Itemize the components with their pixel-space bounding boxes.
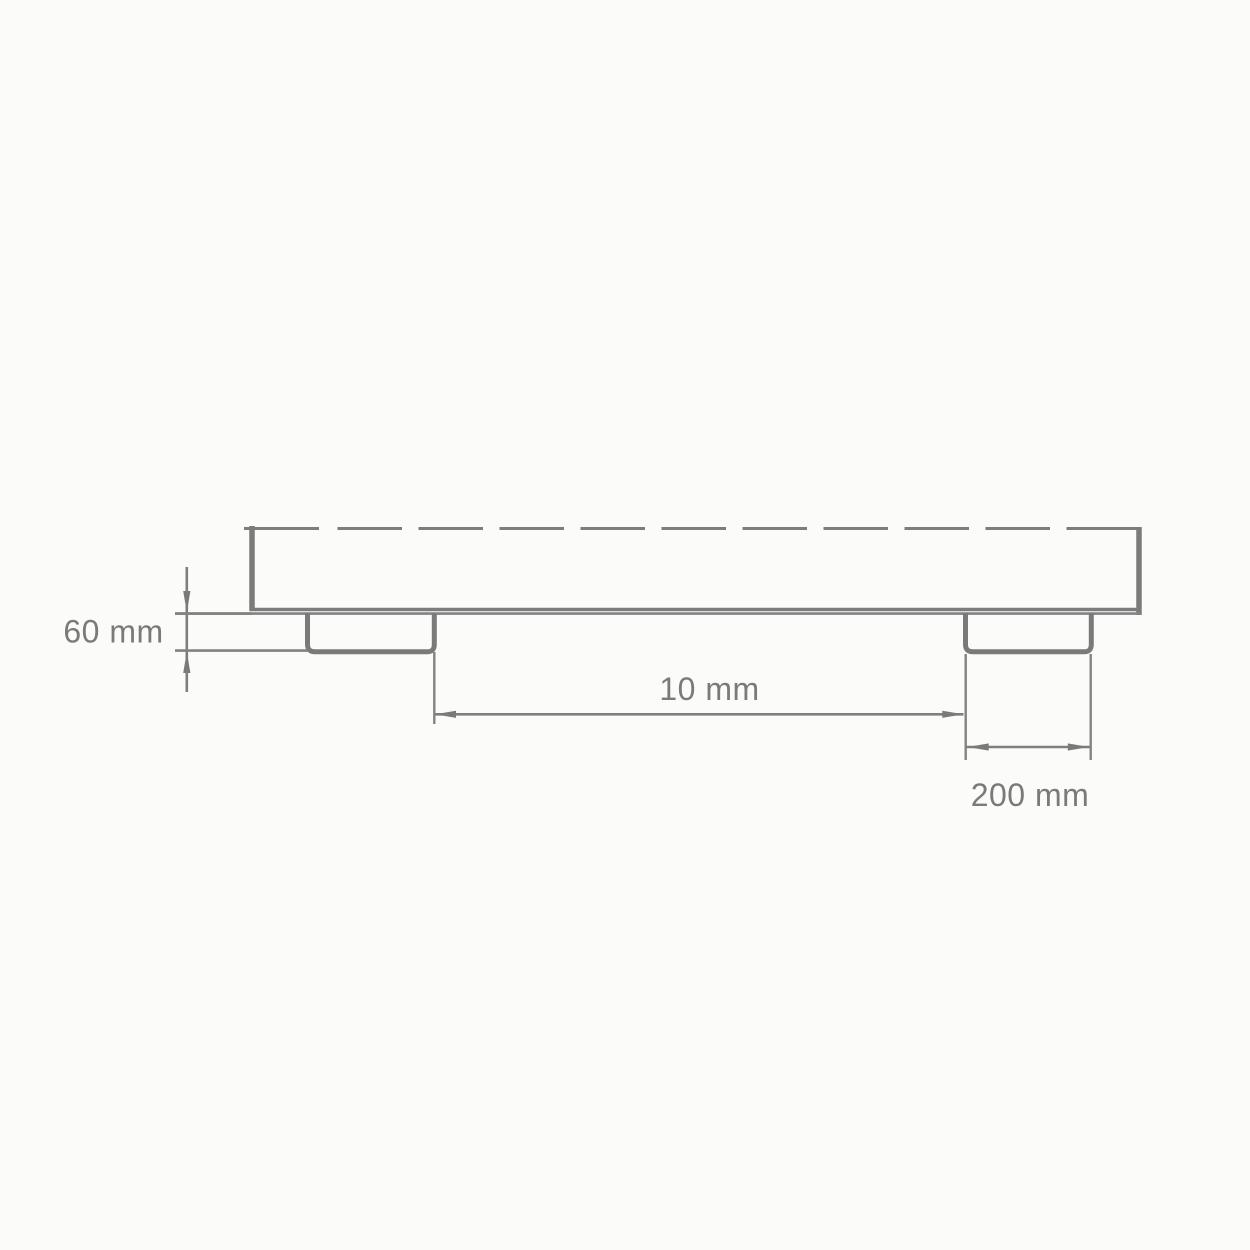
svg-text:60 mm: 60 mm	[63, 614, 163, 650]
svg-text:200 mm: 200 mm	[971, 777, 1090, 813]
svg-text:10 mm: 10 mm	[659, 671, 759, 707]
